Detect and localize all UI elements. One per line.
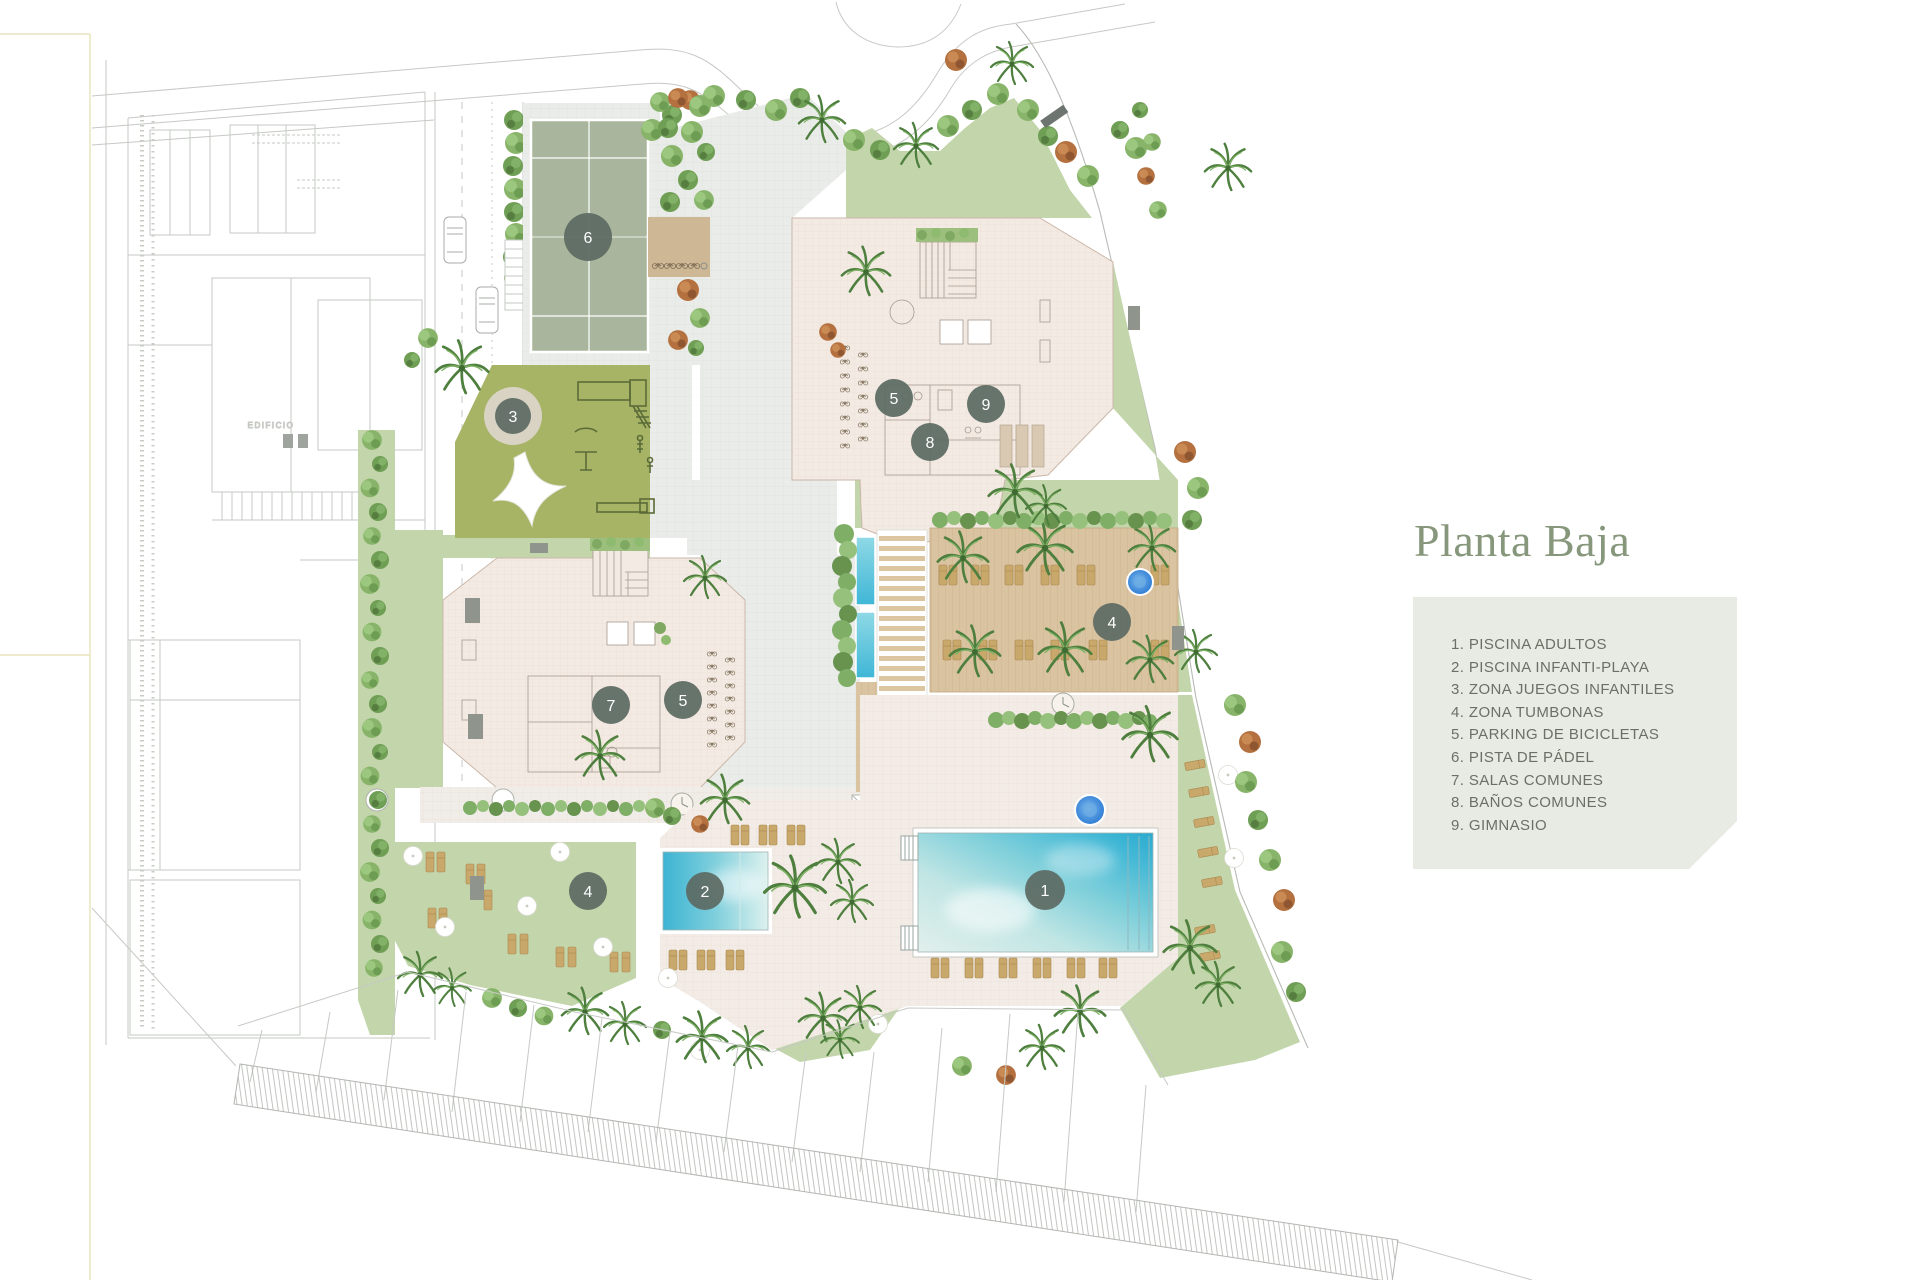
lap-pool-north [856,537,875,605]
svg-text:8: 8 [926,435,935,452]
legend-panel: 1. PISCINA ADULTOS 2. PISCINA INFANTI-PL… [1413,597,1737,869]
marker-gimnasio: 9 [967,385,1005,423]
svg-text:6: 6 [584,230,593,247]
marker-salas: 7 [592,686,630,724]
legend-item-tumbonas: 4. ZONA TUMBONAS [1451,702,1721,725]
playground: 3 [455,365,654,538]
legend-item-salas: 7. SALAS COMUNES [1451,770,1721,793]
marker-tumbonas-lawn: 4 [569,872,607,910]
marker-banos: 8 [911,423,949,461]
svg-text:4: 4 [584,884,593,901]
spa-pool [1074,794,1106,826]
legend-item-padel: 6. PISTA DE PÁDEL [1451,747,1721,770]
page-title: Planta Baja [1414,514,1774,567]
adult-pool: 1 [901,828,1158,978]
marker-tumbonas-deck: 4 [1093,603,1131,641]
marker-playground: 3 [509,409,518,426]
svg-text:4: 4 [1108,615,1117,632]
legend-item-parking-bicis: 5. PARKING DE BICICLETAS [1451,724,1721,747]
legend-item-piscina-infantil: 2. PISCINA INFANTI-PLAYA [1451,657,1721,680]
jacuzzi [1126,568,1154,596]
legend-item-piscina-adultos: 1. PISCINA ADULTOS [1451,634,1721,657]
lower-building: 7 5 [443,537,745,788]
marker-adult-pool: 1 [1025,870,1065,910]
car-icon [476,287,498,333]
car-icon [444,217,466,263]
legend-item-gimnasio: 9. GIMNASIO [1451,815,1721,838]
lap-pool-south [856,612,875,678]
sunbed-deck: 4 [930,519,1178,692]
legend-list: 1. PISCINA ADULTOS 2. PISCINA INFANTI-PL… [1451,634,1721,837]
svg-text:5: 5 [679,693,688,710]
marker-padel: 6 [564,213,612,261]
svg-text:1: 1 [1041,883,1050,900]
site-plan-page: EDIFICIO [0,0,1920,1280]
neighbor-label: EDIFICIO [248,421,295,430]
marker-bikes-upper: 5 [875,379,913,417]
svg-text:5: 5 [890,391,899,408]
legend-item-banos: 8. BAÑOS COMUNES [1451,792,1721,815]
svg-text:9: 9 [982,397,991,414]
stairs [505,240,523,310]
legend-item-juegos: 3. ZONA JUEGOS INFANTILES [1451,679,1721,702]
svg-text:7: 7 [607,698,616,715]
marker-bikes-lower: 5 [664,681,702,719]
svg-text:2: 2 [701,884,710,901]
marker-kids-pool: 2 [686,872,724,910]
